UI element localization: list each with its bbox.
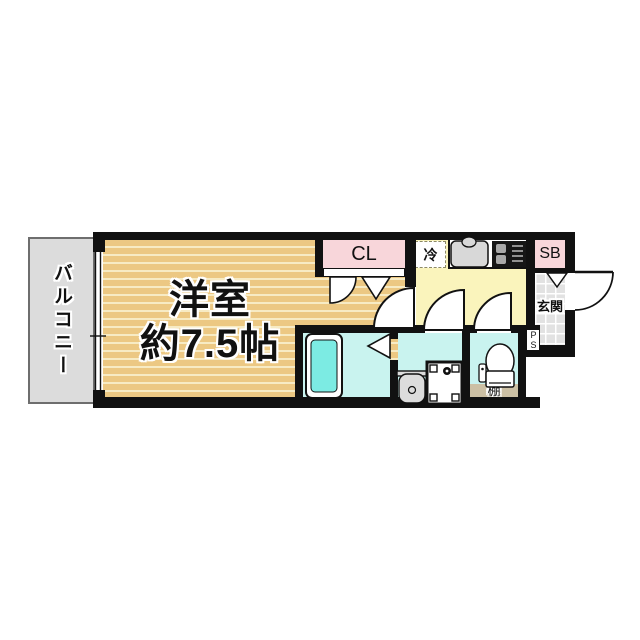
refrigerator-label: 冷: [424, 245, 438, 265]
wall: [390, 333, 398, 339]
pipe-space-label: PS: [529, 330, 538, 350]
wall: [405, 232, 416, 277]
wall: [565, 310, 575, 347]
pipe-space: PS: [526, 329, 540, 351]
wall: [93, 232, 575, 240]
room-label-line1: 洋室: [95, 278, 325, 322]
room-label-line2: 約7.5帖: [95, 322, 325, 366]
wall: [93, 232, 105, 252]
balcony: バルコニー: [28, 237, 95, 404]
wall: [390, 360, 398, 408]
wall: [528, 232, 535, 273]
washroom: [398, 333, 462, 405]
refrigerator-space: 冷: [415, 241, 446, 268]
wall: [405, 277, 416, 287]
shelf: 棚: [470, 384, 518, 398]
floor-plan: バルコニー 棚 CL SB 冷 PS: [0, 0, 640, 640]
balcony-label: バルコニー: [48, 263, 75, 378]
shoe-box-label: SB: [539, 245, 560, 263]
shelf-label: 棚: [487, 384, 500, 398]
wall: [315, 232, 323, 277]
closet: CL: [323, 240, 405, 268]
closet-label: CL: [351, 243, 377, 266]
closet-door-track: [323, 268, 405, 277]
wall: [565, 232, 575, 273]
kitchen-counter: [448, 238, 528, 269]
entrance-door-arc: [575, 272, 613, 310]
wall: [518, 325, 526, 408]
wall: [462, 325, 470, 408]
door-opening: [405, 287, 416, 325]
wall: [93, 397, 540, 408]
shoe-box: SB: [535, 240, 565, 268]
room-label: 洋室 約7.5帖: [95, 278, 325, 366]
entrance-label: 玄関: [533, 296, 567, 315]
